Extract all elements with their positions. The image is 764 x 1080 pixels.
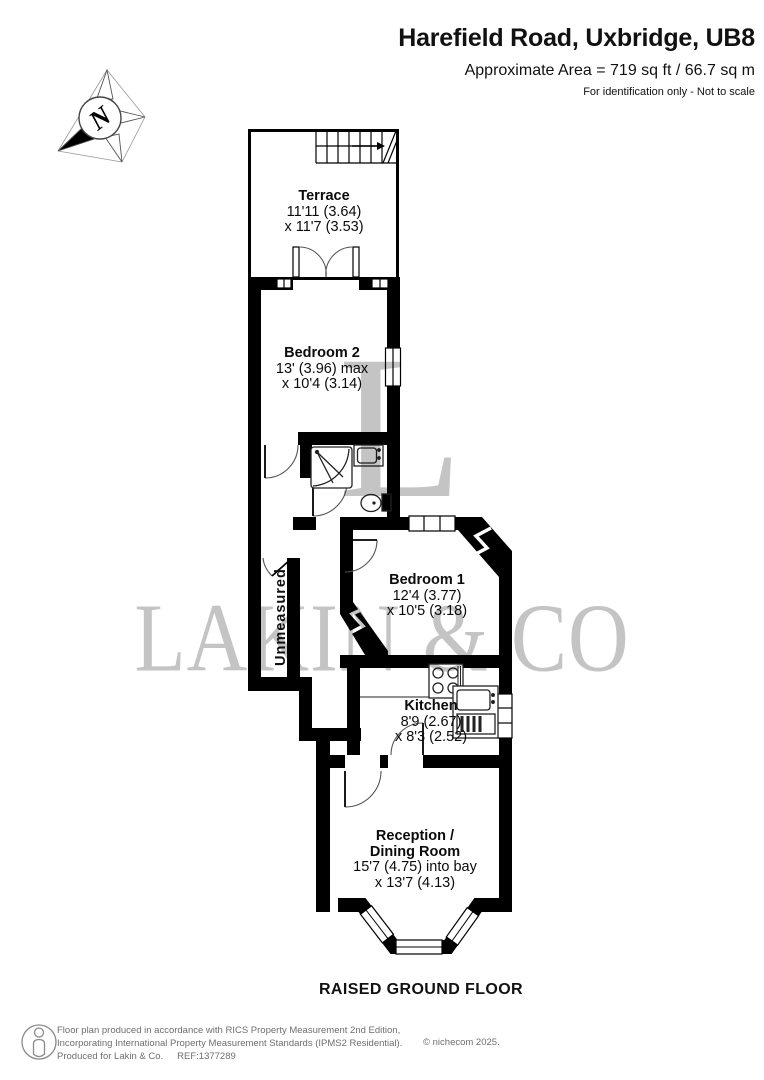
room-dim: x 8'3 (2.52)	[360, 730, 502, 746]
room-dim: 11'11 (3.64)	[250, 205, 398, 221]
footer-disclaimer: Floor plan produced in accordance with R…	[57, 1024, 402, 1063]
room-name: Reception /	[326, 829, 504, 845]
copyright: © nichecom 2025.	[423, 1037, 500, 1048]
kitchen-label: Kitchen 8'9 (2.67) x 8'3 (2.52)	[360, 699, 502, 746]
person-icon	[22, 1025, 56, 1059]
watermark-name: LAKIN & CO	[0, 590, 764, 687]
floor-title: RAISED GROUND FLOOR	[280, 981, 562, 999]
terrace-label: Terrace 11'11 (3.64) x 11'7 (3.53)	[250, 189, 398, 236]
footer-line3: Produced for Lakin & Co.REF:1377289	[57, 1050, 402, 1063]
room-dim: x 11'7 (3.53)	[250, 220, 398, 236]
floorplan-page: Harefield Road, Uxbridge, UB8 Approximat…	[0, 0, 764, 1080]
bay-window-front-glass	[396, 940, 442, 954]
reception-label: Reception / Dining Room 15'7 (4.75) into…	[326, 829, 504, 891]
reference-number: REF:1377289	[177, 1051, 236, 1062]
footer-line2: Incorporating International Property Mea…	[57, 1037, 402, 1050]
terrace-right-window	[372, 279, 388, 288]
room-name: Kitchen	[360, 699, 502, 715]
room-dim: x 13'7 (4.13)	[326, 876, 504, 892]
room-name: Dining Room	[326, 845, 504, 861]
room-name: Terrace	[250, 189, 398, 205]
compass: N	[58, 70, 145, 162]
footer-line1: Floor plan produced in accordance with R…	[57, 1024, 402, 1037]
room-dim: 15'7 (4.75) into bay	[326, 860, 504, 876]
terrace-left-window	[277, 279, 291, 288]
room-dim: 8'9 (2.67)	[360, 715, 502, 731]
produced-for: Produced for Lakin & Co.	[57, 1051, 163, 1062]
watermark-initial: L	[338, 336, 463, 521]
